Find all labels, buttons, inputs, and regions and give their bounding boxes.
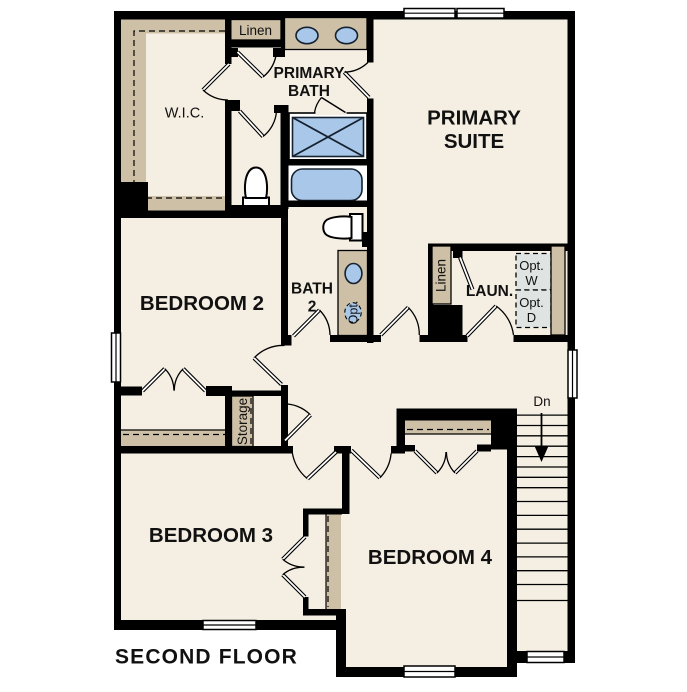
svg-text:BEDROOM 2: BEDROOM 2 xyxy=(140,292,264,315)
svg-text:SECOND FLOOR: SECOND FLOOR xyxy=(115,646,298,669)
svg-text:Dn: Dn xyxy=(533,394,550,409)
svg-text:PRIMARY: PRIMARY xyxy=(427,107,521,130)
svg-text:Linen: Linen xyxy=(434,259,449,292)
svg-text:BEDROOM 3: BEDROOM 3 xyxy=(149,524,273,547)
svg-text:BATH: BATH xyxy=(288,83,330,100)
svg-text:Linen: Linen xyxy=(239,23,272,38)
svg-text:W.I.C.: W.I.C. xyxy=(165,106,204,122)
svg-text:Opt.: Opt. xyxy=(519,295,544,310)
svg-text:Storage: Storage xyxy=(235,398,250,445)
svg-text:Opt.: Opt. xyxy=(519,258,544,273)
svg-text:LAUN.: LAUN. xyxy=(466,283,513,300)
svg-text:Opt.: Opt. xyxy=(347,301,361,325)
svg-text:BATH: BATH xyxy=(291,281,333,298)
svg-text:D: D xyxy=(527,310,536,325)
svg-text:BEDROOM 4: BEDROOM 4 xyxy=(368,546,493,569)
svg-text:SUITE: SUITE xyxy=(444,130,504,153)
svg-text:W: W xyxy=(525,273,538,288)
svg-text:PRIMARY: PRIMARY xyxy=(274,65,346,82)
